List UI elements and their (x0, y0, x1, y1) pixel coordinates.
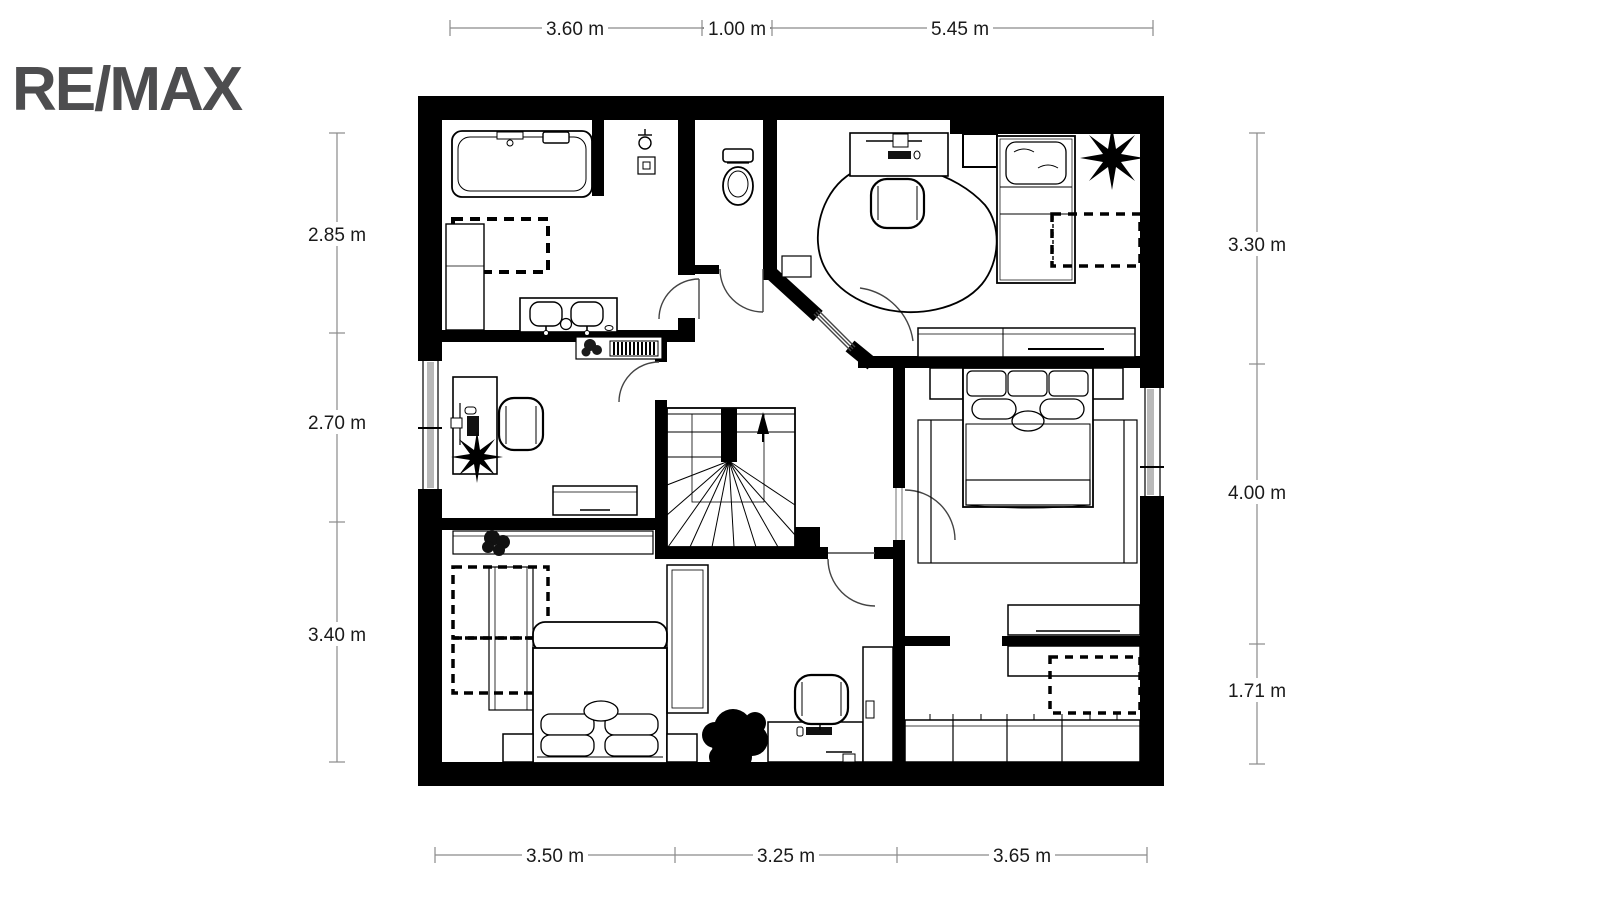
office-chair-icon (499, 398, 543, 450)
storage-zone (905, 646, 1140, 762)
wardrobe-dashed-icon (453, 567, 548, 638)
dimension-label: 3.40 m (308, 625, 366, 646)
floor-plan (418, 96, 1164, 786)
office-chair-icon (871, 179, 924, 228)
desk-icon (850, 133, 948, 176)
dimension-label: 2.85 m (308, 225, 366, 246)
hall-shelf-icon (782, 256, 811, 277)
shelf-icon (453, 531, 653, 554)
dimension-label: 3.60 m (546, 19, 604, 40)
bathroom (446, 129, 655, 336)
master-bedroom (918, 368, 1140, 635)
cabinet-icon (863, 647, 893, 762)
staircase-icon (667, 408, 795, 547)
dimension-label: 2.70 m (308, 413, 366, 434)
bench-icon (1008, 646, 1140, 676)
floorplan-canvas: RE/MAX (0, 0, 1600, 900)
sideboard-icon (918, 328, 1135, 357)
plant-icon (1080, 126, 1144, 190)
wall-top-thick (950, 120, 1164, 134)
chimney (963, 134, 997, 167)
dimension-label: 3.30 m (1228, 235, 1286, 256)
dimension-top: 3.60 m 1.00 m 5.45 m (450, 16, 1153, 40)
office-chair-icon (795, 675, 848, 730)
door-office-icon (619, 362, 659, 402)
door-hall-bedroom-icon (828, 553, 875, 606)
desk-icon (768, 722, 863, 762)
dimension-right: 3.30 m 4.00 m 1.71 m (1220, 133, 1294, 764)
radiator-shelf (576, 337, 662, 359)
dimension-label: 1.71 m (1228, 681, 1286, 702)
nightstand-icon (667, 734, 697, 762)
nightstand-icon (930, 368, 963, 399)
door-wc-icon (720, 269, 763, 312)
dimension-bottom: 3.50 m 3.25 m 3.65 m (435, 843, 1147, 867)
dimension-label: 1.00 m (708, 19, 766, 40)
dimension-label: 3.25 m (757, 846, 815, 867)
door-glazed-diagonal-icon (814, 288, 913, 351)
sideboard-icon (553, 486, 637, 515)
window-right-icon (1140, 387, 1164, 497)
double-bed-icon (963, 368, 1093, 508)
nightstand-icon (1091, 368, 1123, 399)
radiator-icon (610, 341, 658, 356)
dresser-icon (1008, 605, 1140, 635)
dimension-label: 4.00 m (1228, 483, 1286, 504)
tree-plant-icon (702, 709, 768, 769)
wardrobe-icon (667, 565, 708, 713)
remax-logo: RE/MAX (12, 55, 243, 124)
wall-bottom (418, 762, 1164, 786)
window-left-icon (418, 360, 442, 490)
office-room (451, 377, 637, 515)
closet-row-icon (905, 714, 1140, 762)
bedroom-bottom (453, 530, 893, 769)
stair-newel-wall (721, 408, 737, 462)
wall-top (418, 96, 1164, 120)
floorplan-page: RE/MAX (0, 0, 1600, 900)
shower-icon (638, 129, 655, 174)
dimension-label: 5.45 m (931, 19, 989, 40)
nightstand-icon (503, 734, 533, 762)
bathtub-icon (452, 131, 592, 197)
double-bed-icon (533, 622, 667, 763)
toilet-icon (723, 149, 753, 205)
dimension-label: 3.65 m (993, 846, 1051, 867)
door-bathroom-icon (659, 279, 699, 319)
door-right-bedroom-icon (893, 488, 955, 540)
dimension-left: 2.85 m 2.70 m 3.40 m (300, 133, 374, 762)
single-bed-icon (997, 136, 1075, 283)
wc (723, 149, 753, 205)
dimension-label: 3.50 m (526, 846, 584, 867)
bathroom-cabinet-icon (446, 224, 484, 330)
double-sink-vanity-icon (520, 298, 617, 336)
